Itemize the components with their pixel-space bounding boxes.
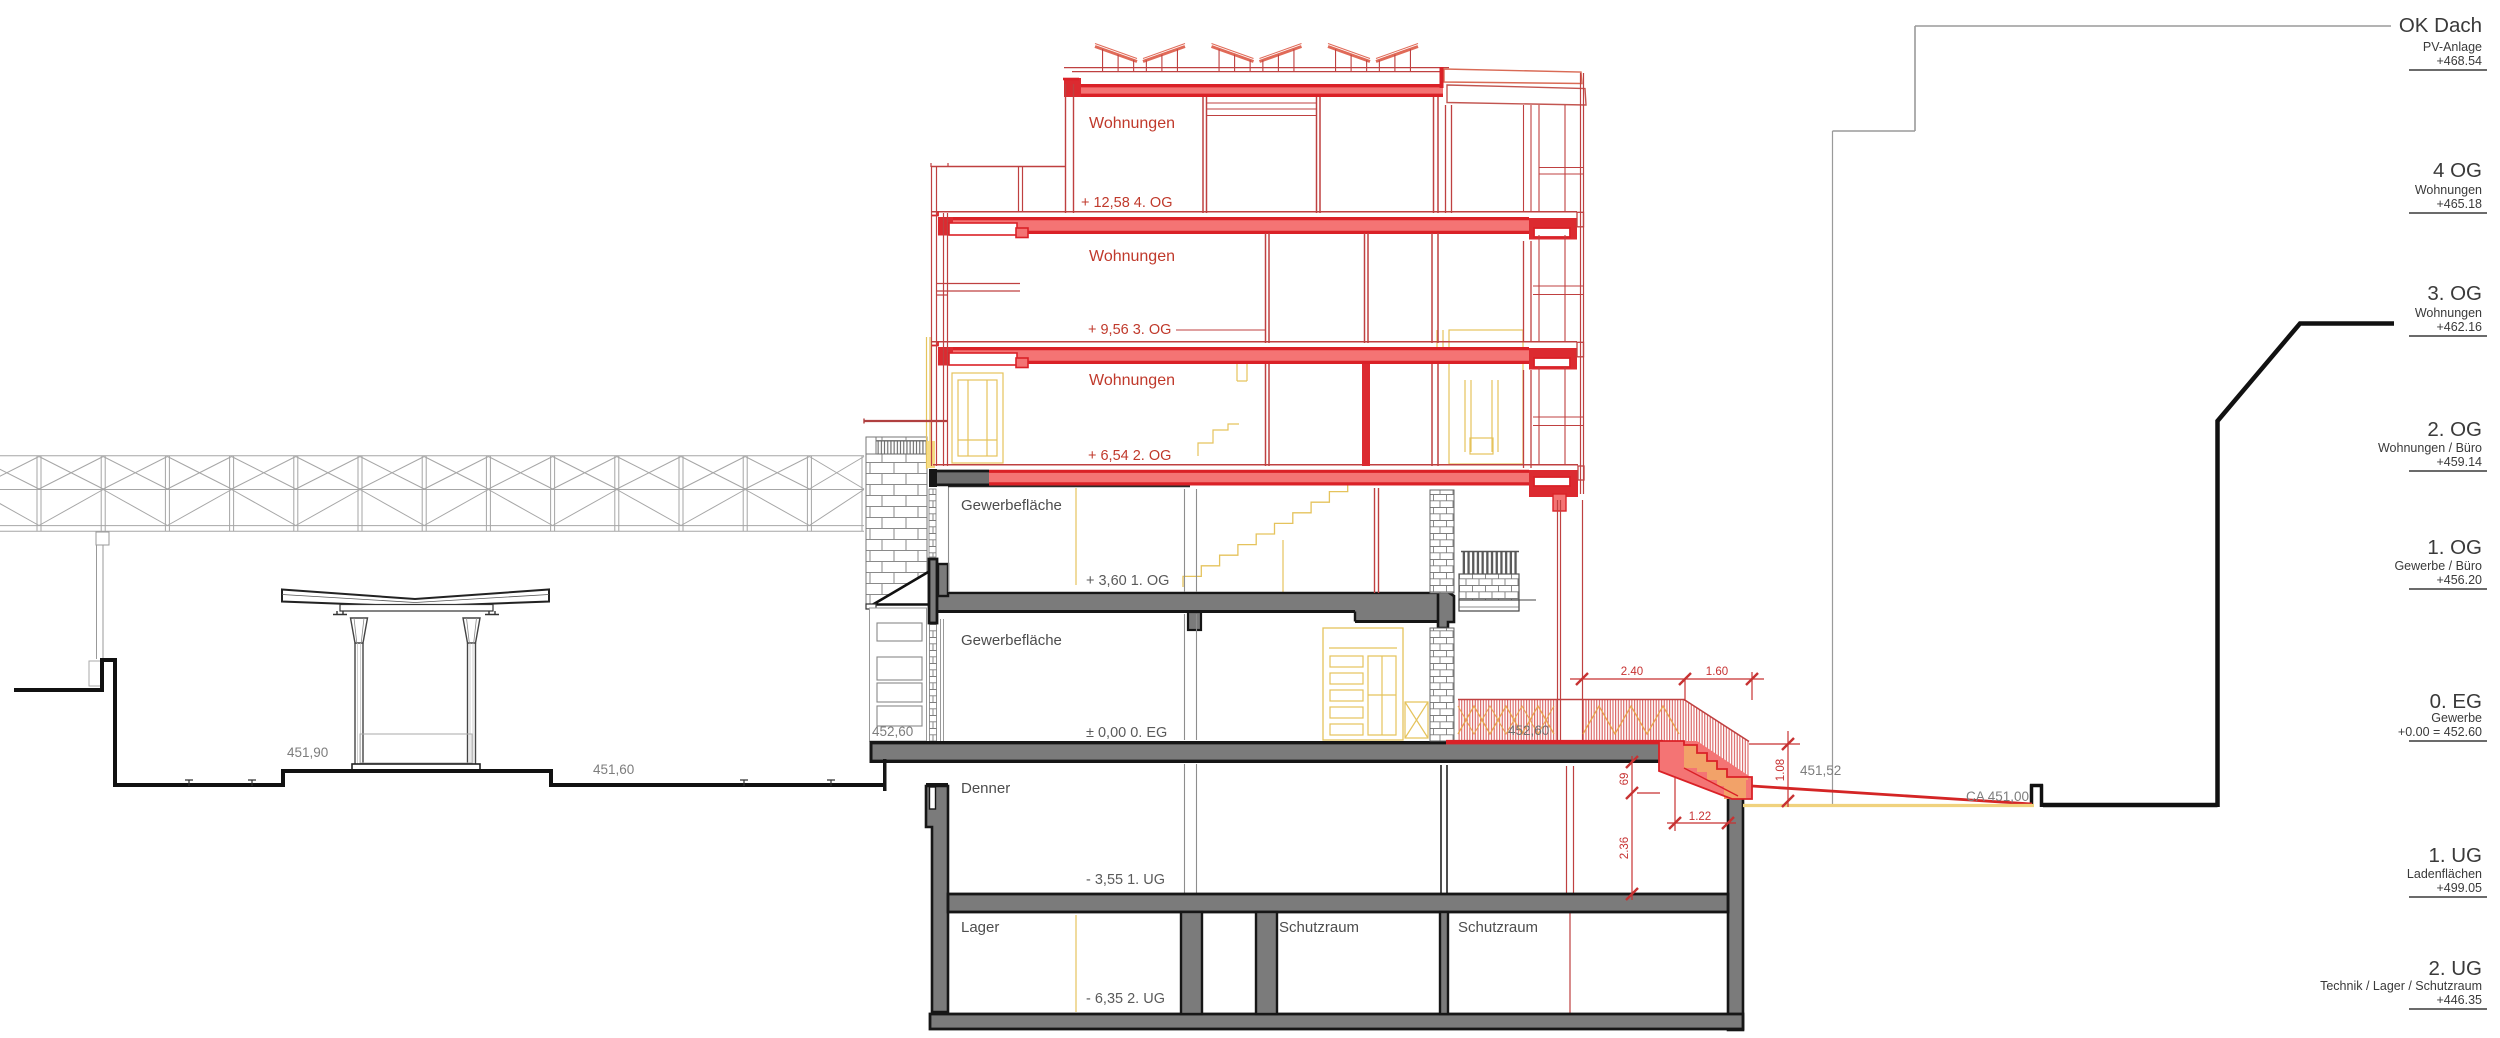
- svg-text:Technik / Lager / Schutzraum: Technik / Lager / Schutzraum: [2320, 979, 2482, 993]
- svg-text:1.22: 1.22: [1689, 811, 1711, 823]
- svg-text:69: 69: [1619, 773, 1631, 786]
- svg-text:CA 451,00: CA 451,00: [1966, 789, 2029, 804]
- svg-text:Denner: Denner: [961, 780, 1010, 797]
- svg-text:452,60: 452,60: [1508, 723, 1549, 738]
- svg-text:OK Dach: OK Dach: [2399, 14, 2482, 37]
- svg-text:Wohnungen: Wohnungen: [2415, 183, 2482, 197]
- svg-text:+ 9,56 3. OG: + 9,56 3. OG: [1088, 322, 1171, 338]
- svg-text:Schutzraum: Schutzraum: [1458, 919, 1538, 936]
- svg-text:Gewerbefläche: Gewerbefläche: [961, 497, 1062, 514]
- svg-text:1. UG: 1. UG: [2428, 844, 2482, 867]
- svg-text:Wohnungen: Wohnungen: [1089, 372, 1175, 389]
- svg-text:+499.05: +499.05: [2436, 881, 2482, 895]
- svg-text:Lager: Lager: [961, 919, 999, 936]
- svg-text:+459.14: +459.14: [2436, 455, 2482, 469]
- svg-text:Gewerbefläche: Gewerbefläche: [961, 632, 1062, 649]
- svg-text:Schutzraum: Schutzraum: [1279, 919, 1359, 936]
- svg-text:+ 6,54 2. OG: + 6,54 2. OG: [1088, 448, 1171, 464]
- svg-text:451,52: 451,52: [1800, 763, 1841, 778]
- svg-text:Wohnungen: Wohnungen: [1089, 115, 1175, 132]
- svg-text:+462.16: +462.16: [2436, 320, 2482, 334]
- svg-text:Gewerbe: Gewerbe: [2431, 711, 2482, 725]
- svg-text:PV-Anlage: PV-Anlage: [2423, 40, 2482, 54]
- svg-text:2. UG: 2. UG: [2428, 957, 2482, 980]
- svg-text:Ladenflächen: Ladenflächen: [2407, 867, 2482, 881]
- svg-text:Wohnungen: Wohnungen: [2415, 306, 2482, 320]
- svg-text:+465.18: +465.18: [2436, 197, 2482, 211]
- svg-text:451,90: 451,90: [287, 745, 328, 760]
- svg-text:1.60: 1.60: [1706, 666, 1728, 678]
- svg-text:+446.35: +446.35: [2436, 993, 2482, 1007]
- svg-text:+ 12,58 4. OG: + 12,58 4. OG: [1081, 195, 1173, 211]
- svg-text:- 3,55 1. UG: - 3,55 1. UG: [1086, 872, 1165, 888]
- svg-text:451,60: 451,60: [593, 762, 634, 777]
- svg-text:Gewerbe / Büro: Gewerbe / Büro: [2394, 559, 2482, 573]
- svg-text:+468.54: +468.54: [2436, 54, 2482, 68]
- svg-text:2. OG: 2. OG: [2427, 418, 2482, 441]
- svg-text:4 OG: 4 OG: [2433, 159, 2482, 182]
- svg-text:1. OG: 1. OG: [2427, 536, 2482, 559]
- svg-text:- 6,35 2. UG: - 6,35 2. UG: [1086, 991, 1165, 1007]
- svg-text:452,60: 452,60: [872, 724, 913, 739]
- svg-text:0. EG: 0. EG: [2430, 690, 2482, 713]
- svg-text:+456.20: +456.20: [2436, 573, 2482, 587]
- svg-text:Wohnungen / Büro: Wohnungen / Büro: [2378, 441, 2482, 455]
- svg-text:+ 3,60 1. OG: + 3,60 1. OG: [1086, 573, 1169, 589]
- svg-text:2.36: 2.36: [1619, 837, 1631, 859]
- svg-text:2.40: 2.40: [1621, 666, 1643, 678]
- svg-text:Wohnungen: Wohnungen: [1089, 248, 1175, 265]
- svg-text:+0.00 = 452.60: +0.00 = 452.60: [2398, 725, 2482, 739]
- svg-text:3. OG: 3. OG: [2427, 282, 2482, 305]
- svg-text:± 0,00 0. EG: ± 0,00 0. EG: [1086, 725, 1167, 741]
- svg-text:1.08: 1.08: [1775, 759, 1787, 781]
